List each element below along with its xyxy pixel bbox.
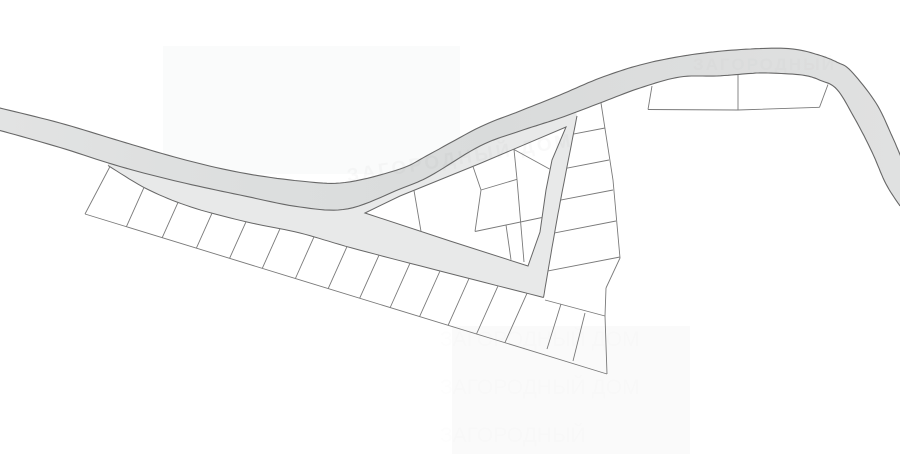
svg-text:ЗАГОРОДНЫЙ: ЗАГОРОДНЫЙ <box>693 55 836 74</box>
svg-text:ЗАГОРОДНЫЙ ДОМ: ЗАГОРОДНЫЙ ДОМ <box>440 327 640 351</box>
svg-text:ЗАГОРОДНЫЙ ДОМ: ЗАГОРОДНЫЙ ДОМ <box>440 375 640 399</box>
svg-text:ЗАГОРОДНЫЙ: ЗАГОРОДНЫЙ <box>440 423 586 447</box>
